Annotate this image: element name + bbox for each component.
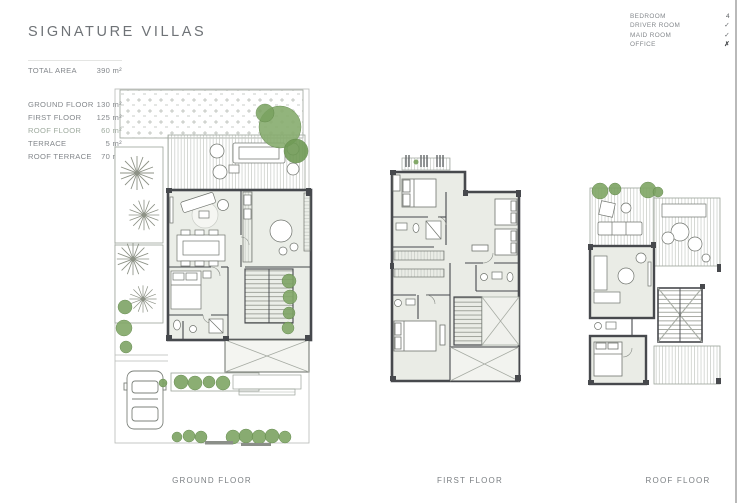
staircase bbox=[454, 297, 482, 345]
area-label: ROOF TERRACE bbox=[28, 152, 92, 161]
total-area-value: 390 m² bbox=[97, 66, 122, 75]
first-floor-plan bbox=[388, 155, 523, 385]
area-row-roof-terrace: ROOF TERRACE 70 m² bbox=[28, 152, 122, 161]
feature-label: MAID ROOM bbox=[630, 31, 671, 40]
planter-bushes bbox=[159, 375, 230, 390]
roof-terrace-bottom bbox=[654, 346, 720, 384]
feature-legend: BEDROOM 4 DRIVER ROOM ✓ MAID ROOM ✓ OFFI… bbox=[630, 12, 730, 50]
feature-label: BEDROOM bbox=[630, 12, 666, 21]
driveway bbox=[115, 355, 168, 361]
balcony-plant bbox=[414, 160, 419, 165]
area-label: GROUND FLOOR bbox=[28, 100, 94, 109]
entry-step bbox=[241, 443, 271, 446]
feature-row-driver-room: DRIVER ROOM ✓ bbox=[630, 21, 730, 30]
feature-value: 4 bbox=[726, 12, 730, 21]
feature-cross-icon: ✗ bbox=[724, 40, 730, 49]
feature-label: DRIVER ROOM bbox=[630, 21, 680, 30]
area-label: ROOF FLOOR bbox=[28, 126, 81, 135]
rear-step bbox=[233, 375, 301, 389]
feature-row-bedroom: BEDROOM 4 bbox=[630, 12, 730, 21]
roof-bath-fixtures bbox=[595, 322, 617, 330]
feature-label: OFFICE bbox=[630, 40, 656, 49]
area-label: FIRST FLOOR bbox=[28, 113, 81, 122]
feature-check-icon: ✓ bbox=[724, 21, 730, 30]
car bbox=[124, 371, 166, 429]
area-row-terrace: TERRACE 5 m² bbox=[28, 139, 122, 148]
entry-porch bbox=[225, 340, 309, 372]
ground-floor-plan bbox=[113, 85, 313, 447]
roof-floor-label: ROOF FLOOR bbox=[608, 476, 748, 485]
area-label: TERRACE bbox=[28, 139, 66, 148]
page-title: SIGNATURE VILLAS bbox=[28, 24, 206, 40]
staircase-void bbox=[658, 288, 702, 342]
stair-void bbox=[482, 297, 519, 345]
roof-floor-plan bbox=[588, 178, 723, 386]
total-area-label: TOTAL AREA bbox=[28, 66, 77, 75]
feature-check-icon: ✓ bbox=[724, 31, 730, 40]
floorplan-sheet: SIGNATURE VILLAS TOTAL AREA 390 m² GROUN… bbox=[0, 0, 750, 503]
balcony-pergola bbox=[402, 155, 450, 170]
total-area-row: TOTAL AREA 390 m² bbox=[28, 66, 122, 75]
feature-row-maid-room: MAID ROOM ✓ bbox=[630, 31, 730, 40]
ground-floor-label: GROUND FLOOR bbox=[142, 476, 282, 485]
summary-divider bbox=[28, 60, 122, 61]
page-edge-line bbox=[735, 0, 737, 503]
rear-step-hatch bbox=[239, 389, 295, 395]
wardrobe bbox=[394, 251, 444, 260]
area-row-ground: GROUND FLOOR 130 m² bbox=[28, 100, 122, 109]
double-height-void bbox=[450, 347, 519, 381]
area-row-roof: ROOF FLOOR 60 m² bbox=[28, 126, 122, 135]
feature-row-office: OFFICE ✗ bbox=[630, 40, 730, 49]
left-bushes bbox=[116, 300, 132, 353]
wardrobe bbox=[394, 269, 444, 277]
area-row-first: FIRST FLOOR 125 m² bbox=[28, 113, 122, 122]
entry-step bbox=[205, 441, 233, 445]
first-floor-label: FIRST FLOOR bbox=[400, 476, 540, 485]
